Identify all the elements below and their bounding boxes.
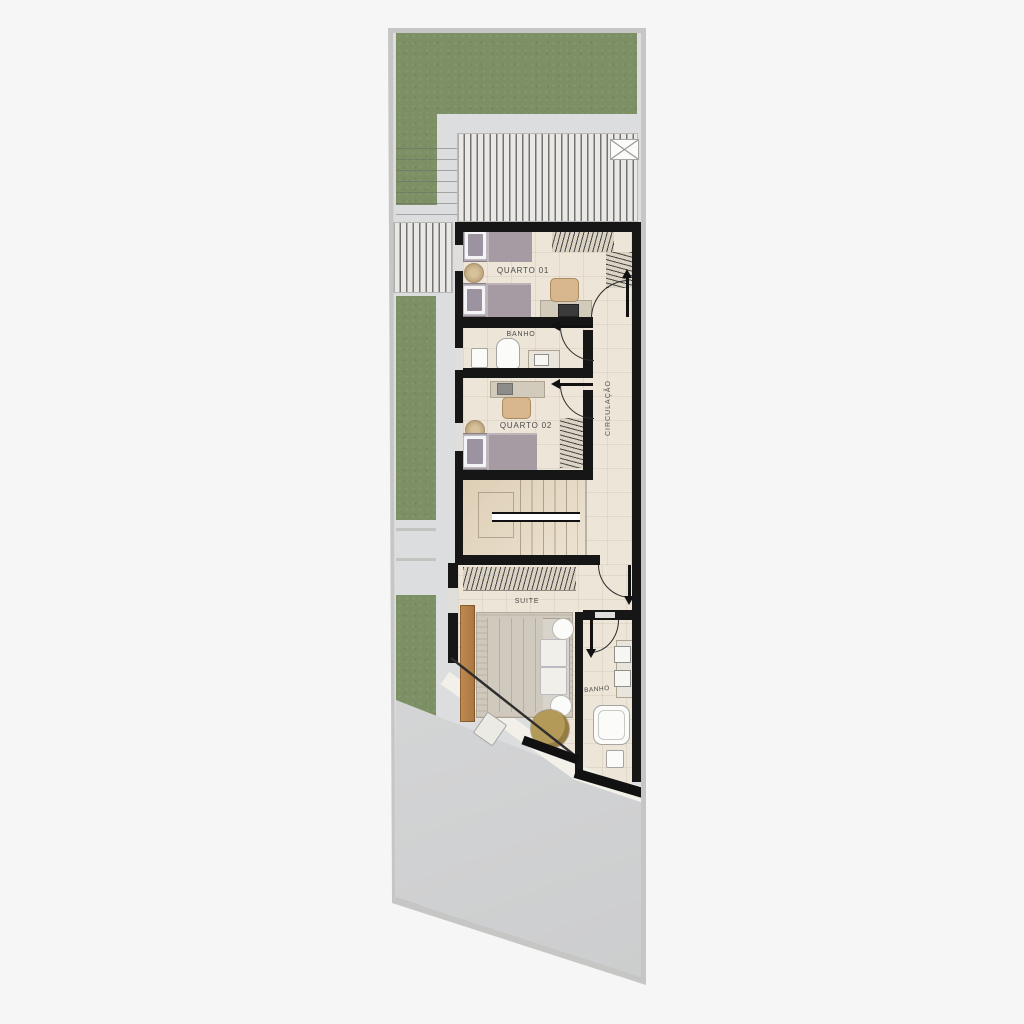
window: [455, 245, 463, 271]
sink-basin: [614, 646, 631, 663]
toilet: [496, 338, 520, 369]
room-label-circulacao: CIRCULAÇÃO: [605, 372, 619, 444]
suite-wall-left: [448, 563, 458, 663]
toilet: [606, 750, 624, 768]
wall-stairs-suite: [455, 555, 600, 565]
room-label-suite: SUITE: [497, 598, 557, 605]
sink-basin: [534, 354, 549, 366]
suite-closet-rack: [463, 567, 576, 591]
window: [455, 423, 463, 451]
blanket: [487, 433, 537, 470]
pergola-side: [393, 222, 453, 293]
window: [448, 588, 458, 613]
bathtub: [593, 705, 630, 745]
laundry-appliance: [471, 348, 488, 368]
window: [455, 348, 463, 370]
door-leaf: [626, 278, 629, 317]
desk-shelf-items: [497, 383, 513, 395]
floor-plan-canvas: QUARTO 01 BANHO QUARTO 02 CIRCULAÇÃO SUI…: [0, 0, 1024, 1024]
desk-chair: [502, 397, 531, 419]
wall-suite-bath: [575, 612, 583, 778]
wall-banho-quarto02: [455, 368, 593, 378]
lot-boundary-wall: QUARTO 01 BANHO QUARTO 02 CIRCULAÇÃO SUI…: [388, 28, 646, 985]
garden-grass-top: [396, 33, 637, 114]
door-arrow-icon: [622, 269, 632, 278]
pillow: [464, 230, 487, 260]
entry-steps: [396, 148, 457, 222]
door-arrow-icon: [624, 596, 634, 605]
door-leaf: [560, 325, 593, 328]
single-bed: [462, 433, 537, 470]
pillow: [540, 667, 567, 695]
exterior-wall-left: [455, 232, 463, 565]
single-bed: [463, 228, 532, 262]
wall-quarto02-stairs: [455, 470, 593, 480]
door-leaf: [560, 383, 593, 386]
blanket: [487, 228, 532, 262]
stair-circulation-divider: [585, 480, 587, 555]
wood-tv-panel: [460, 605, 475, 722]
window: [595, 612, 615, 618]
garden-grass-left-mid: [396, 296, 436, 520]
room-label-banho-superior: BANHO: [491, 331, 551, 338]
armchair: [531, 710, 569, 748]
pillow: [463, 285, 486, 315]
laptop: [558, 304, 579, 317]
bedside-table: [552, 618, 574, 640]
single-bed: [462, 283, 531, 317]
room-label-quarto-01: QUARTO 01: [488, 266, 558, 275]
exterior-wall-top: [455, 222, 641, 232]
path-joint-line: [396, 558, 436, 561]
pillow: [540, 639, 567, 667]
door-arrow-icon: [551, 321, 560, 331]
round-rug: [464, 263, 484, 283]
path-joint-line: [396, 528, 436, 531]
door-leaf: [590, 620, 593, 650]
door-arrow-icon: [586, 649, 596, 658]
skylight-x-icon: [611, 140, 638, 159]
pillow: [463, 435, 487, 468]
door-arrow-icon: [551, 379, 560, 389]
exterior-wall-right: [632, 232, 642, 782]
room-label-quarto-02: QUARTO 02: [491, 421, 561, 430]
skylight: [610, 139, 639, 160]
desk-chair: [550, 278, 579, 302]
stair-rail: [492, 512, 580, 522]
blanket: [486, 283, 531, 317]
door-leaf: [628, 565, 631, 597]
lot-paving: QUARTO 01 BANHO QUARTO 02 CIRCULAÇÃO SUI…: [393, 33, 641, 980]
blanket: [487, 618, 543, 712]
